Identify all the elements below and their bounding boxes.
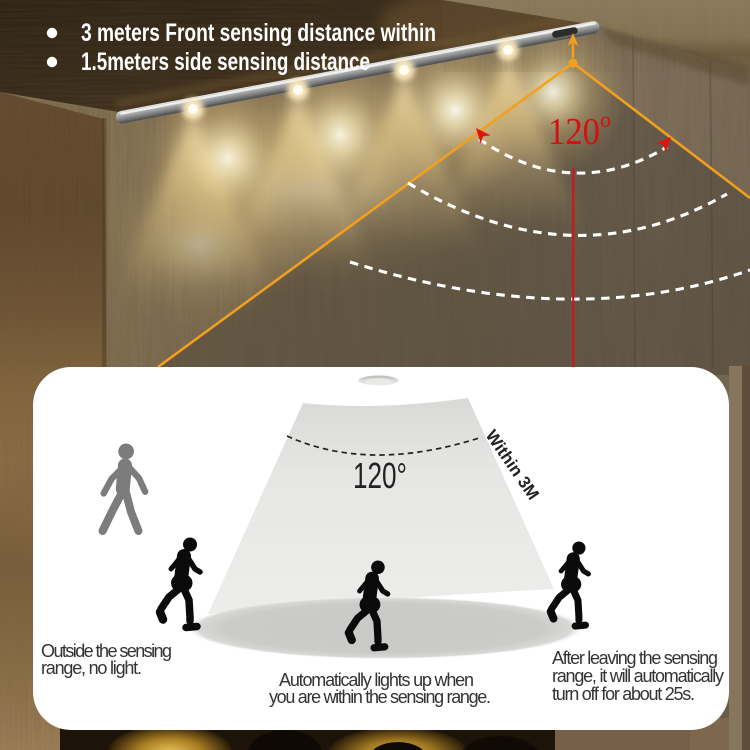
svg-text:range, no light.: range, no light. [41, 658, 142, 678]
svg-text:1.5meters side sensing distanc: 1.5meters side sensing distance [81, 48, 370, 76]
svg-text:After leaving the sensing: After leaving the sensing [552, 648, 718, 668]
svg-text:3 meters Front sensing distanc: 3 meters Front sensing distance within [81, 19, 436, 47]
svg-text:range, it will automatically: range, it will automatically [552, 666, 724, 686]
svg-text:you are within the sensing ran: you are within the sensing range. [269, 687, 491, 707]
svg-text:turn off for about 25s.: turn off for about 25s. [552, 684, 695, 704]
svg-text:o: o [600, 107, 611, 132]
svg-text:120°: 120° [353, 455, 407, 496]
svg-text:120: 120 [548, 111, 600, 153]
